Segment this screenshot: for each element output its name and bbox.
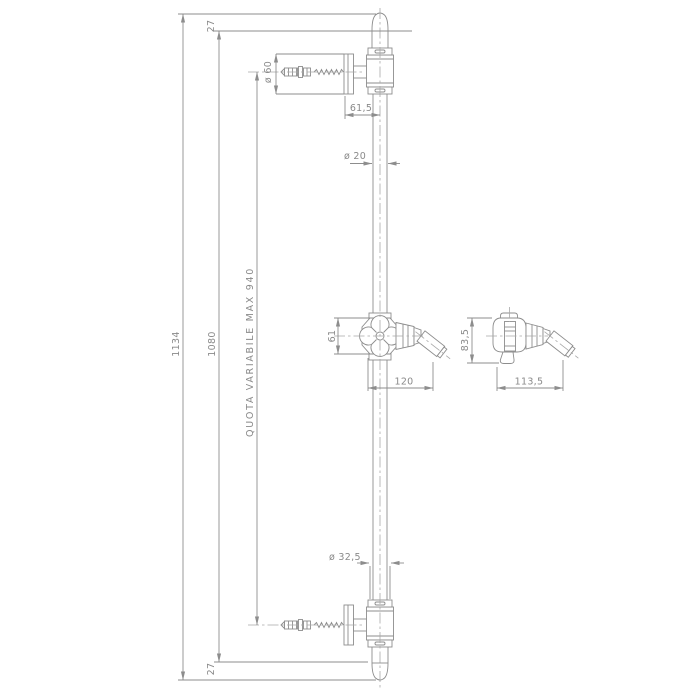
dimension-labels: 27 ø 60 61,5 ø 20 1134 1080 QUOTA VARIAB… [171, 20, 543, 676]
dim-inner-height-label: 1080 [207, 331, 218, 356]
dim-bracket-diameter-label: ø 32,5 [329, 552, 361, 563]
top-wall-bracket [344, 48, 394, 94]
top-wall-flange [344, 54, 354, 94]
dim-flange-diameter-label: ø 60 [263, 61, 274, 83]
side-top-cap [501, 313, 518, 318]
dim-slider-reach-label: 120 [394, 377, 413, 388]
dim-wall-to-rail-center-label: 61,5 [350, 103, 372, 114]
dim-total-height-label: 1134 [171, 331, 182, 356]
handshower-holder-side-view [493, 313, 576, 364]
dim-slider-height-label: 61 [327, 330, 338, 343]
dim-offset-bottom-label: 27 [206, 663, 217, 676]
dim-holder-height-label: 83,5 [460, 329, 471, 351]
dim-rail-diameter-label: ø 20 [344, 151, 366, 162]
dim-fixing-span-label: QUOTA VARIABILE MAX 940 [245, 267, 256, 437]
technical-drawing: 27 ø 60 61,5 ø 20 1134 1080 QUOTA VARIAB… [0, 0, 700, 700]
dim-holder-reach-label: 113,5 [515, 377, 544, 388]
handshower-slider-front-view [360, 313, 448, 360]
drawing-canvas: 27 ø 60 61,5 ø 20 1134 1080 QUOTA VARIAB… [0, 0, 700, 700]
side-lever-handle [500, 352, 514, 364]
bottom-wall-bracket [344, 600, 394, 647]
dim-offset-top-label: 27 [206, 20, 217, 33]
